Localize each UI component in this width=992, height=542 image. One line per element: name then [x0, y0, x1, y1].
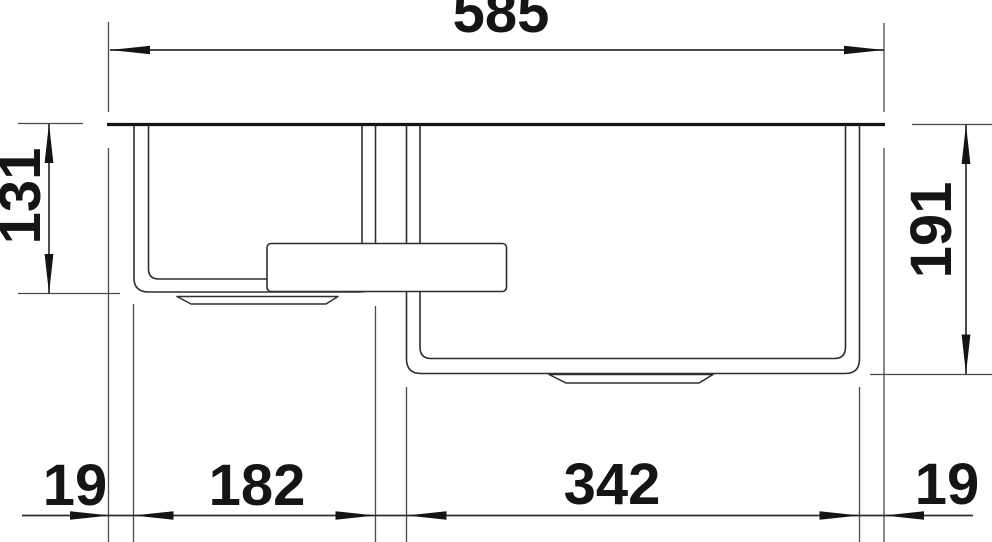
dimension-label-bottom-left-edge: 19 — [43, 457, 108, 515]
right-bowl-drain — [549, 375, 713, 384]
dimension-label-right-depth: 191 — [903, 182, 961, 279]
dimension-label-total-width: 585 — [453, 0, 550, 42]
dimension-label-left-depth: 131 — [0, 148, 50, 245]
arrowhead — [844, 46, 884, 54]
arrowhead — [962, 335, 971, 375]
dimension-label-left-bowl-width: 182 — [209, 457, 306, 515]
dimension-label-right-bowl-width: 342 — [564, 456, 661, 514]
arrowheads — [45, 46, 971, 520]
sink-dimension-drawing — [0, 0, 992, 542]
arrowhead — [407, 511, 447, 519]
right-bowl-inner-edge — [420, 126, 846, 359]
arrowhead — [134, 511, 174, 519]
arrowhead — [962, 125, 971, 165]
arrowhead — [820, 511, 860, 519]
left-bowl-drain — [177, 297, 338, 305]
arrowhead — [45, 254, 54, 294]
arrowhead — [336, 511, 376, 519]
sink-tray — [267, 244, 507, 292]
dimension-label-bottom-right-edge: 19 — [915, 456, 980, 514]
arrowhead — [110, 46, 150, 54]
technical-drawing-canvas: 585 131 191 19 182 342 19 — [0, 0, 992, 542]
sink-outline — [107, 125, 885, 384]
